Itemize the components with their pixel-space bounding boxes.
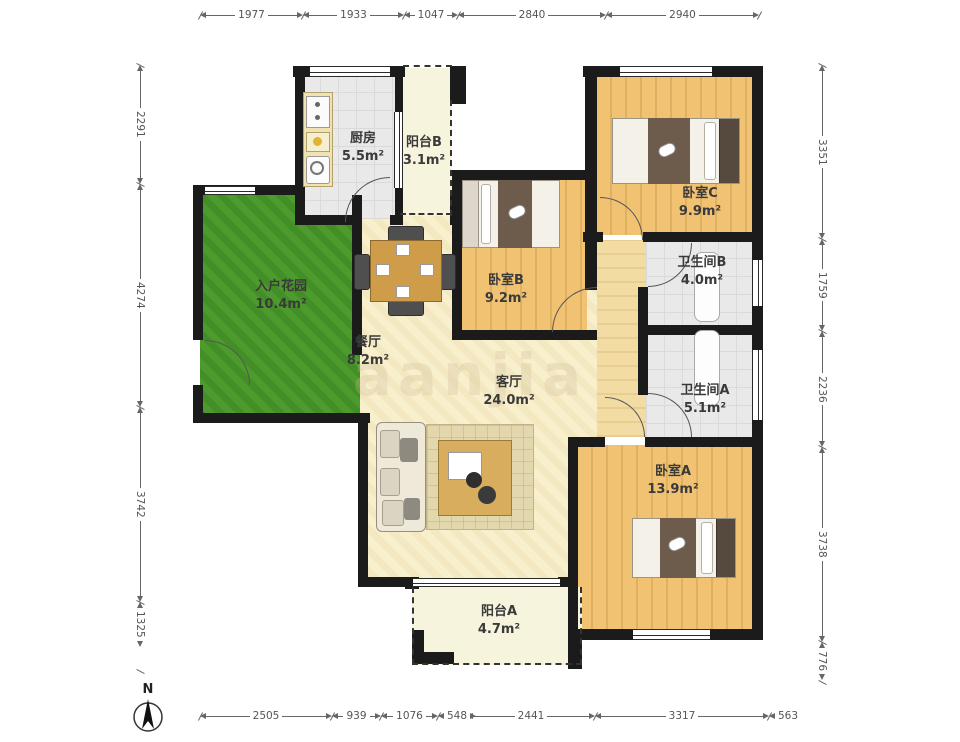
dimension-right: 776 <box>816 642 828 682</box>
dimension-bottom: 2505 <box>200 710 332 722</box>
sofa-pillow <box>404 498 420 520</box>
room-label-bedroom-a: 卧室A 13.9m² <box>647 463 698 499</box>
wall <box>193 185 203 340</box>
wall <box>193 413 370 423</box>
dimension-right: 2236 <box>816 331 828 447</box>
sink-drain <box>315 102 320 107</box>
floor-plan-canvas: aanjia <box>0 0 960 742</box>
room-name: 厨房 <box>342 130 384 148</box>
room-name: 卧室B <box>485 272 527 290</box>
sofa-pillow <box>400 438 418 462</box>
wall <box>450 66 466 104</box>
wall <box>710 629 763 640</box>
dimension-value: 939 <box>343 710 369 722</box>
room-name: 餐厅 <box>347 334 389 352</box>
kitchen-sink <box>306 96 330 128</box>
place-setting <box>396 286 410 298</box>
dimension-left: 4274 <box>134 184 146 407</box>
room-area: 4.7m² <box>478 621 520 639</box>
dimension-left: 2291 <box>134 65 146 184</box>
compass-icon <box>131 697 165 735</box>
dimension-value: 1325 <box>134 608 146 641</box>
room-label-bathroom-b: 卫生间B 4.0m² <box>678 254 727 290</box>
bed-headboard <box>463 181 479 247</box>
window <box>752 260 763 306</box>
window <box>205 186 255 195</box>
bed-pillow <box>481 184 491 244</box>
wall <box>568 437 605 447</box>
compass: N <box>128 682 168 739</box>
dimension-bottom: 563 <box>769 710 809 722</box>
dimension-top: 2940 <box>606 9 759 21</box>
dimension-right: 3351 <box>816 65 828 239</box>
room-label-bedroom-c: 卧室C 9.9m² <box>679 185 721 221</box>
sofa-cushion <box>382 500 404 526</box>
kettle <box>478 486 496 504</box>
dimension-top: 1933 <box>303 9 404 21</box>
dimension-top: 1977 <box>200 9 303 21</box>
dining-chair <box>388 300 424 316</box>
wall <box>638 335 648 395</box>
dimension-top: 1047 <box>404 9 458 21</box>
room-area: 3.1m² <box>403 152 445 170</box>
wall <box>643 232 763 242</box>
room-area: 5.1m² <box>680 400 729 418</box>
dimension-bottom: 548 <box>438 710 467 722</box>
room-area: 4.0m² <box>678 272 727 290</box>
wall <box>645 437 763 447</box>
dimension-value: 4274 <box>134 279 146 312</box>
room-label-kitchen: 厨房 5.5m² <box>342 130 384 166</box>
window-sliding <box>413 578 560 587</box>
room-area: 9.2m² <box>485 290 527 308</box>
room-name: 客厅 <box>483 374 534 392</box>
window <box>752 350 763 420</box>
dimension-value: 1076 <box>393 710 426 722</box>
window <box>620 66 712 77</box>
room-name: 卫生间A <box>680 382 729 400</box>
dimension-bottom: 1076 <box>381 710 438 722</box>
kitchen-fixture <box>313 137 322 146</box>
balcony-b-dashed-edge <box>403 65 452 67</box>
sink-drain <box>315 115 320 120</box>
wall <box>558 577 578 587</box>
dimension-value: 3742 <box>134 488 146 521</box>
dimension-value: 3738 <box>816 528 828 561</box>
dimension-value: 548 <box>444 710 470 722</box>
room-label-dining: 餐厅 8.2m² <box>347 334 389 370</box>
room-area: 10.4m² <box>255 296 307 314</box>
room-label-bathroom-a: 卫生间A 5.1m² <box>680 382 729 418</box>
room-name: 卧室C <box>679 185 721 203</box>
dimension-value: 2291 <box>134 108 146 141</box>
room-label-balcony-a: 阳台A 4.7m² <box>478 603 520 639</box>
dimension-value: 3317 <box>666 710 699 722</box>
place-setting <box>420 264 434 276</box>
dimension-bottom: 2441 <box>467 710 595 722</box>
dimension-value: 1933 <box>337 9 370 21</box>
dimension-value: 1047 <box>415 9 448 21</box>
room-area: 13.9m² <box>647 481 698 499</box>
kettle <box>466 472 482 488</box>
wall <box>358 413 368 587</box>
balcony-b-dashed-edge <box>450 100 452 216</box>
room-name: 卧室A <box>647 463 698 481</box>
dimension-top: 2840 <box>458 9 606 21</box>
stove-burner <box>310 161 324 175</box>
dimension-value: 2840 <box>516 9 549 21</box>
dimension-value: 563 <box>775 710 801 722</box>
room-area: 24.0m² <box>483 392 534 410</box>
wall <box>638 287 648 327</box>
room-name: 阳台B <box>403 134 445 152</box>
room-area: 8.2m² <box>347 352 389 370</box>
bed-pillow <box>704 122 716 180</box>
room-area: 5.5m² <box>342 148 384 166</box>
room-name: 入户花园 <box>255 278 307 296</box>
dimension-left: 3742 <box>134 407 146 602</box>
dimension-value: 3351 <box>816 136 828 169</box>
dimension-bottom: 939 <box>332 710 381 722</box>
room-area: 9.9m² <box>679 203 721 221</box>
room-name: 阳台A <box>478 603 520 621</box>
compass-north-label: N <box>128 682 168 697</box>
window <box>310 66 390 77</box>
bed-headboard <box>716 519 735 577</box>
wall <box>452 170 595 180</box>
dimension-value: 1977 <box>235 9 268 21</box>
dimension-value: 2441 <box>515 710 548 722</box>
sofa-cushion <box>380 430 400 458</box>
bed-headboard <box>719 119 739 183</box>
place-setting <box>396 244 410 256</box>
room-label-living: 客厅 24.0m² <box>483 374 534 410</box>
room-name: 卫生间B <box>678 254 727 272</box>
place-setting <box>376 264 390 276</box>
room-label-bedroom-b: 卧室B 9.2m² <box>485 272 527 308</box>
room-label-entry-garden: 入户花园 10.4m² <box>255 278 307 314</box>
dimension-right: 3738 <box>816 447 828 642</box>
dimension-right: 1759 <box>816 239 828 331</box>
dimension-value: 2505 <box>250 710 283 722</box>
dimension-value: 2236 <box>816 373 828 406</box>
dining-chair <box>440 254 456 290</box>
sofa-cushion <box>380 468 400 496</box>
dimension-value: 1759 <box>816 269 828 302</box>
room-label-balcony-b: 阳台B 3.1m² <box>403 134 445 170</box>
dimension-bottom: 3317 <box>595 710 769 722</box>
balcony-b-dashed-edge <box>400 213 452 215</box>
dining-chair <box>354 254 370 290</box>
bed-pillow <box>701 522 713 574</box>
dimension-left: 1325 <box>134 602 146 671</box>
dimension-value: 2940 <box>666 9 699 21</box>
window <box>633 629 710 640</box>
window <box>394 112 403 188</box>
dimension-value: 776 <box>816 648 828 674</box>
